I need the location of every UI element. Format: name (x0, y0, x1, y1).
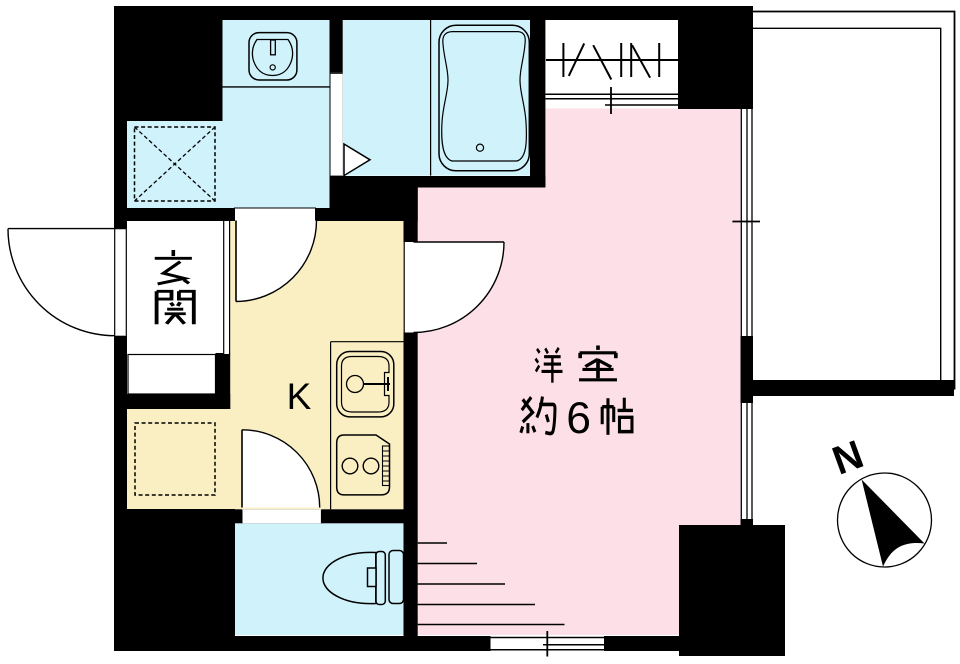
svg-text:K: K (287, 376, 312, 417)
svg-text:6: 6 (566, 394, 591, 443)
